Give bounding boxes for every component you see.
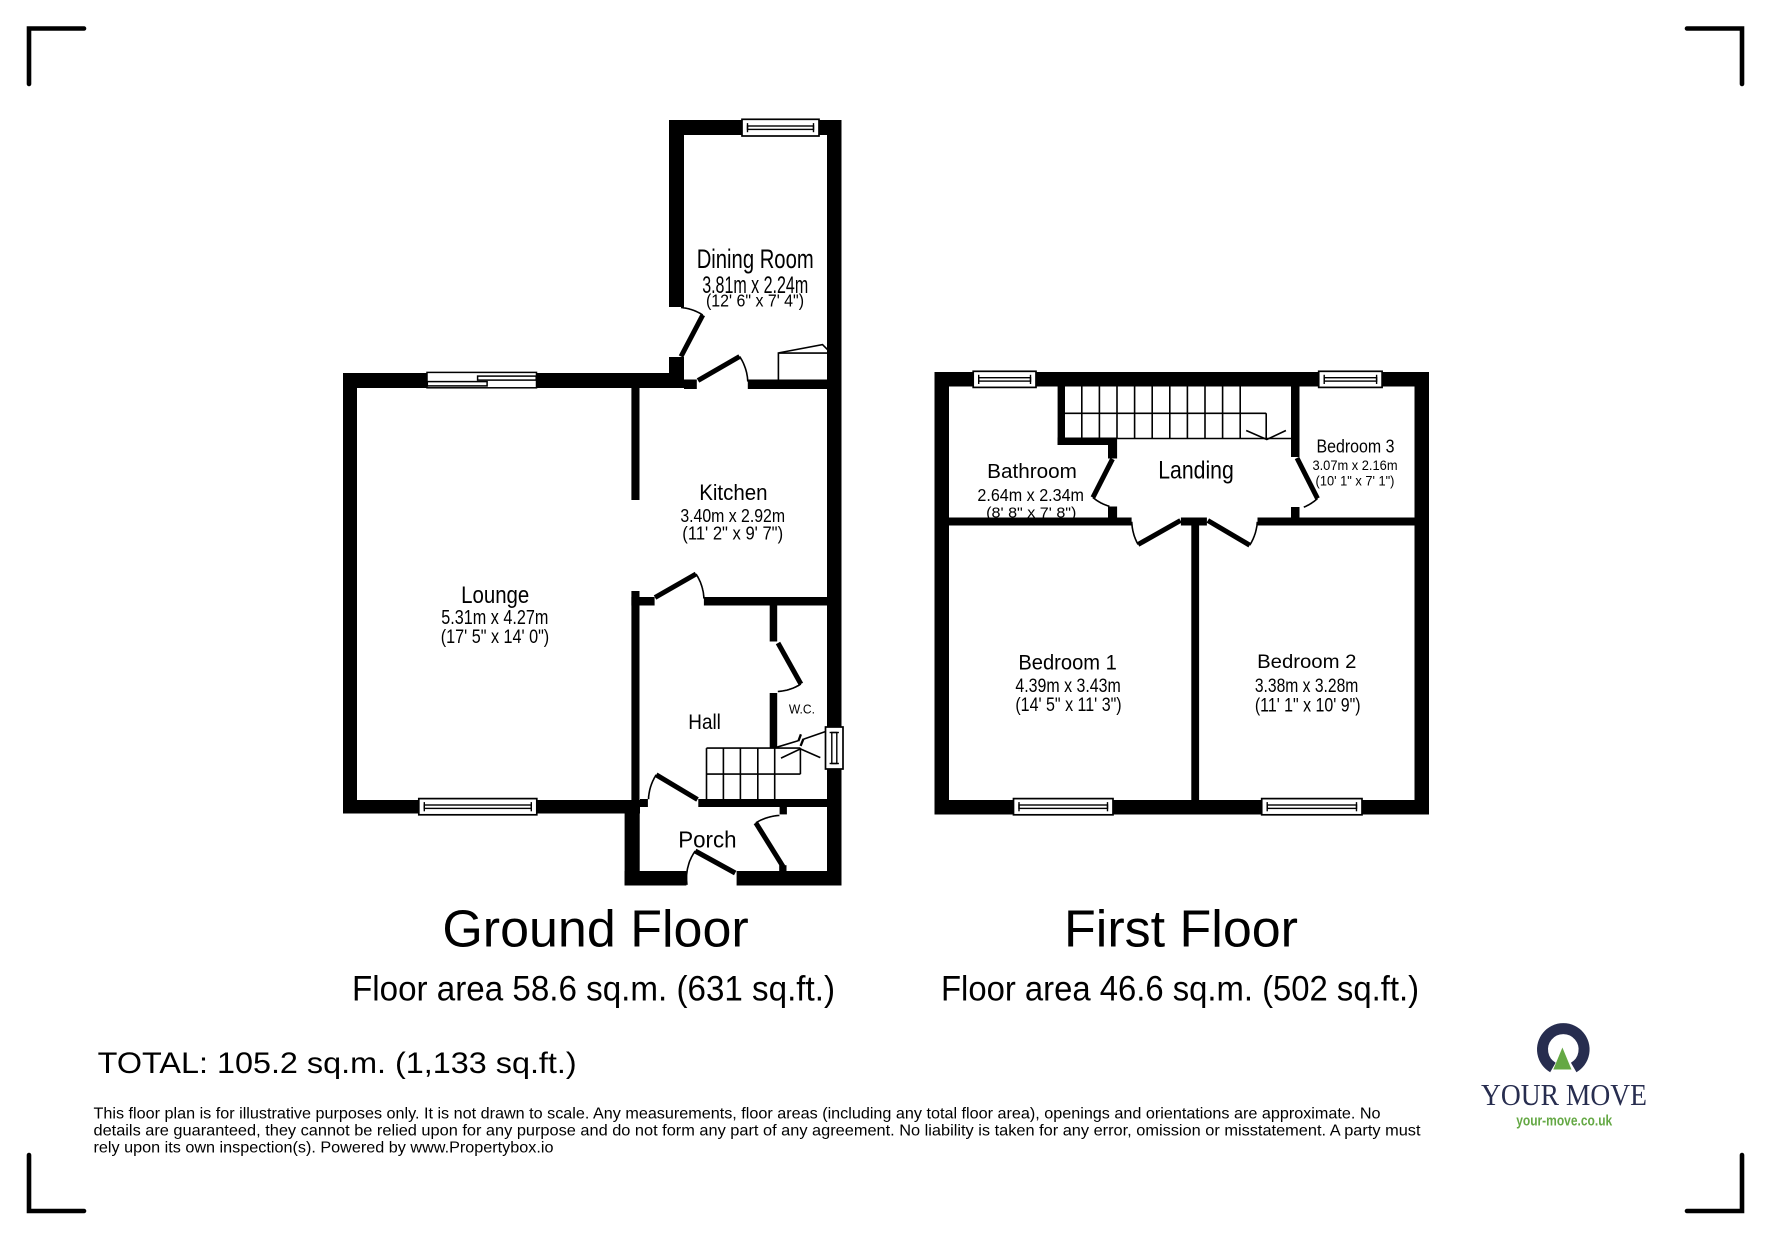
svg-text:(12' 6" x 7' 4"): (12' 6" x 7' 4")	[706, 291, 804, 311]
svg-text:3.07m x 2.16m: 3.07m x 2.16m	[1312, 458, 1397, 474]
svg-text:Lounge: Lounge	[461, 582, 529, 609]
svg-text:(10' 1" x 7' 1"): (10' 1" x 7' 1")	[1316, 474, 1395, 490]
svg-text:details are guaranteed, they c: details are guaranteed, they cannot be r…	[94, 1123, 1422, 1140]
svg-text:Bedroom 3: Bedroom 3	[1317, 436, 1395, 456]
svg-text:Bathroom: Bathroom	[987, 461, 1077, 483]
svg-text:2.64m x 2.34m: 2.64m x 2.34m	[977, 485, 1084, 505]
svg-text:Bedroom 2: Bedroom 2	[1257, 651, 1356, 673]
svg-text:Ground Floor: Ground Floor	[442, 901, 748, 959]
svg-text:(8' 8" x 7' 8"): (8' 8" x 7' 8")	[986, 506, 1076, 522]
svg-text:TOTAL: 105.2 sq.m. (1,133 sq.f: TOTAL: 105.2 sq.m. (1,133 sq.ft.)	[98, 1047, 577, 1080]
svg-text:Dining Room: Dining Room	[697, 244, 814, 274]
svg-text:W.C.: W.C.	[789, 702, 815, 717]
svg-text:(11' 2" x 9' 7"): (11' 2" x 9' 7")	[682, 522, 783, 543]
svg-text:(14' 5" x 11' 3"): (14' 5" x 11' 3")	[1015, 694, 1121, 716]
svg-text:YOUR MOVE: YOUR MOVE	[1481, 1077, 1647, 1112]
svg-text:(17' 5" x 14' 0"): (17' 5" x 14' 0")	[441, 626, 549, 648]
svg-text:Landing: Landing	[1158, 458, 1234, 485]
svg-text:rely upon its own inspection(s: rely upon its own inspection(s). Powered…	[94, 1139, 554, 1156]
svg-text:This floor plan is for illustr: This floor plan is for illustrative purp…	[94, 1106, 1381, 1123]
svg-text:Hall: Hall	[688, 711, 721, 734]
svg-text:3.38m x 3.28m: 3.38m x 3.28m	[1255, 676, 1359, 697]
svg-text:Floor area 58.6 sq.m. (631 sq.: Floor area 58.6 sq.m. (631 sq.ft.)	[352, 969, 835, 1008]
svg-text:your-move.co.uk: your-move.co.uk	[1516, 1113, 1613, 1130]
svg-text:(11' 1" x 10' 9"): (11' 1" x 10' 9")	[1255, 695, 1361, 716]
svg-text:Bedroom 1: Bedroom 1	[1018, 650, 1117, 674]
svg-text:Floor area 46.6 sq.m. (502 sq.: Floor area 46.6 sq.m. (502 sq.ft.)	[941, 969, 1419, 1008]
svg-text:Porch: Porch	[678, 827, 736, 853]
svg-text:Kitchen: Kitchen	[699, 480, 767, 505]
svg-text:First Floor: First Floor	[1064, 901, 1298, 959]
